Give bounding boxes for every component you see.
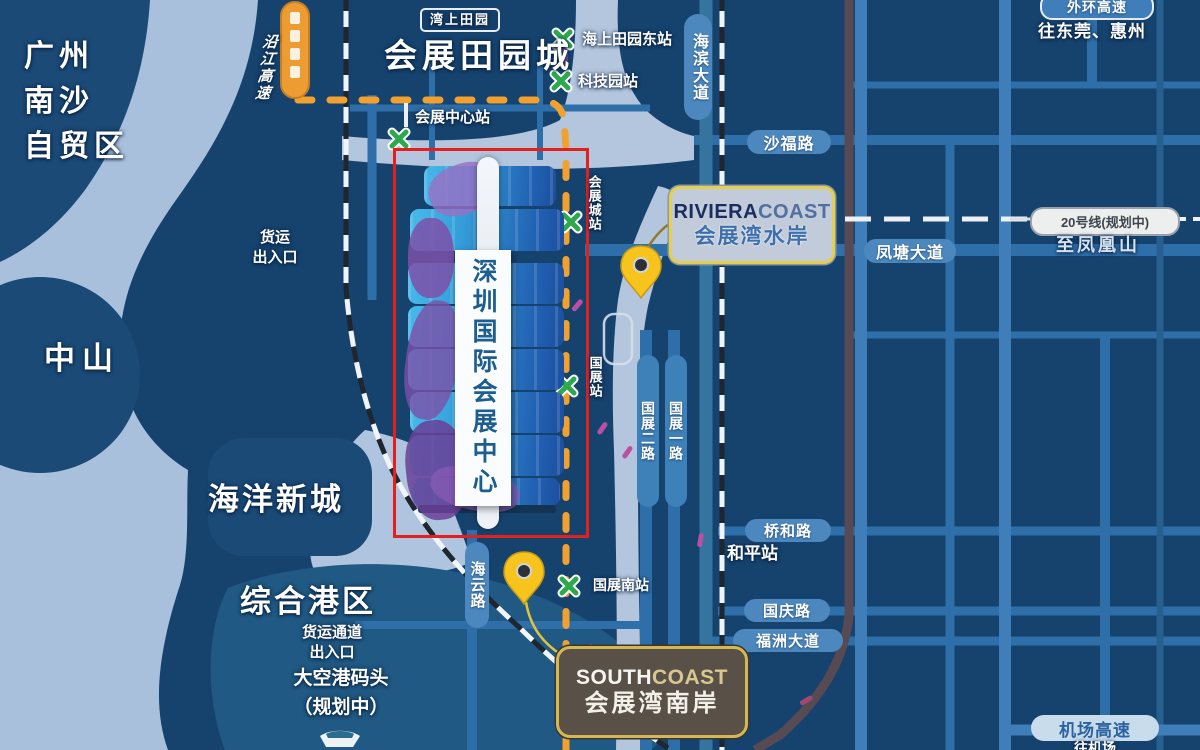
south-coast-en: SOUTHCOAST (576, 666, 728, 690)
exhibition-centre-name: 深圳国际会展中心 (465, 258, 501, 498)
direction-airport: 往机场 (1074, 740, 1116, 750)
garden-city-title: 会展田园城 (384, 36, 574, 76)
station-huizhan-city: 会展城站 (586, 175, 602, 231)
station-guozhan: 国展站 (587, 356, 603, 398)
riviera-coast-cn: 会展湾水岸 (695, 224, 810, 249)
ferry-icon (320, 731, 360, 747)
coastal-expressway (281, 2, 309, 98)
road-guoqing: 国庆路 (744, 599, 830, 622)
road-waihuan-expressway: 外环高速 (1040, 0, 1154, 20)
station-huizhan-center: 会展中心站 (415, 109, 490, 127)
exhibition-centre-banner: 深圳国际会展中心 (455, 250, 511, 506)
freight-gate-north: 货运 出入口 (238, 228, 312, 267)
region-port-area: 综合港区 (240, 583, 376, 620)
road-haiyun: 海云路 (465, 542, 489, 628)
freight-gate-south: 货运通道 出入口 (288, 623, 376, 662)
station-haishang-tianyuan-east: 海上田园东站 (582, 31, 672, 49)
station-heping: 和平站 (727, 544, 778, 564)
road-guozhan-1st: 国展一路 (665, 355, 687, 507)
road-haibin-avenue: 海滨大道 (684, 14, 712, 120)
riviera-coast-badge: RIVIERACOAST 会展湾水岸 (669, 186, 835, 264)
metro-line20-capsule: 20号线(规划中) (1030, 207, 1180, 236)
road-qiaohe: 桥和路 (745, 519, 831, 542)
south-coast-badge: SOUTHCOAST 会展湾南岸 (556, 646, 748, 738)
riviera-coast-en: RIVIERACOAST (673, 201, 830, 224)
road-shafu: 沙福路 (747, 130, 831, 154)
south-coast-cn: 会展湾南岸 (585, 690, 720, 719)
road-guozhan-2nd: 国展二路 (637, 355, 659, 507)
region-nansha: 广州 南沙 自贸区 (24, 34, 154, 169)
map-canvas: 深圳国际会展中心 广州 南沙 自贸区 中山 海洋新城 综合港区 大空港码头 （规… (0, 0, 1200, 750)
wharf-label: 大空港码头 （规划中） (266, 664, 416, 723)
region-zhongshan: 中山 (44, 340, 120, 377)
road-fengtang: 凤塘大道 (864, 239, 956, 263)
station-guozhan-south: 国展南站 (593, 577, 649, 594)
direction-fenghuangshan: 至凤凰山 (1056, 235, 1140, 257)
station-keji-park: 科技园站 (578, 73, 638, 91)
road-fuzhou-avenue: 福洲大道 (733, 629, 843, 652)
road-airport-expressway: 机场高速 (1031, 715, 1159, 741)
direction-dongguan-huizhou: 往东莞、惠州 (1038, 22, 1146, 42)
region-ocean-new-city: 海洋新城 (208, 481, 344, 518)
garden-city-badge: 湾上田园 (420, 8, 500, 32)
